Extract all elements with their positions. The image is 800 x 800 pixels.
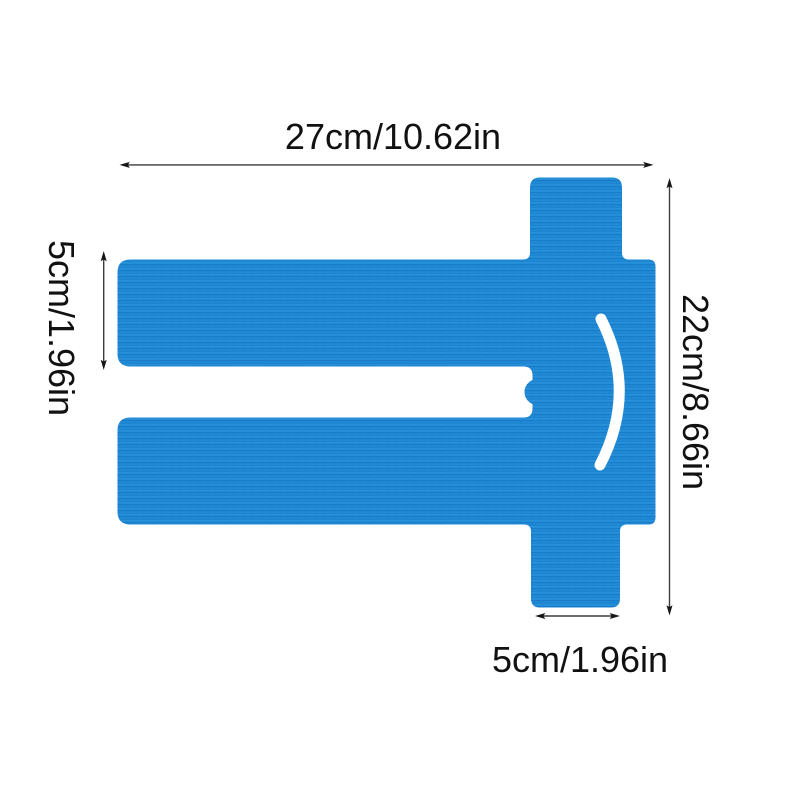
svg-text:5cm/1.96in: 5cm/1.96in [492,639,668,680]
svg-text:5cm/1.96in: 5cm/1.96in [41,240,82,416]
svg-text:27cm/10.62in: 27cm/10.62in [285,116,501,157]
svg-text:22cm/8.66in: 22cm/8.66in [675,294,716,490]
